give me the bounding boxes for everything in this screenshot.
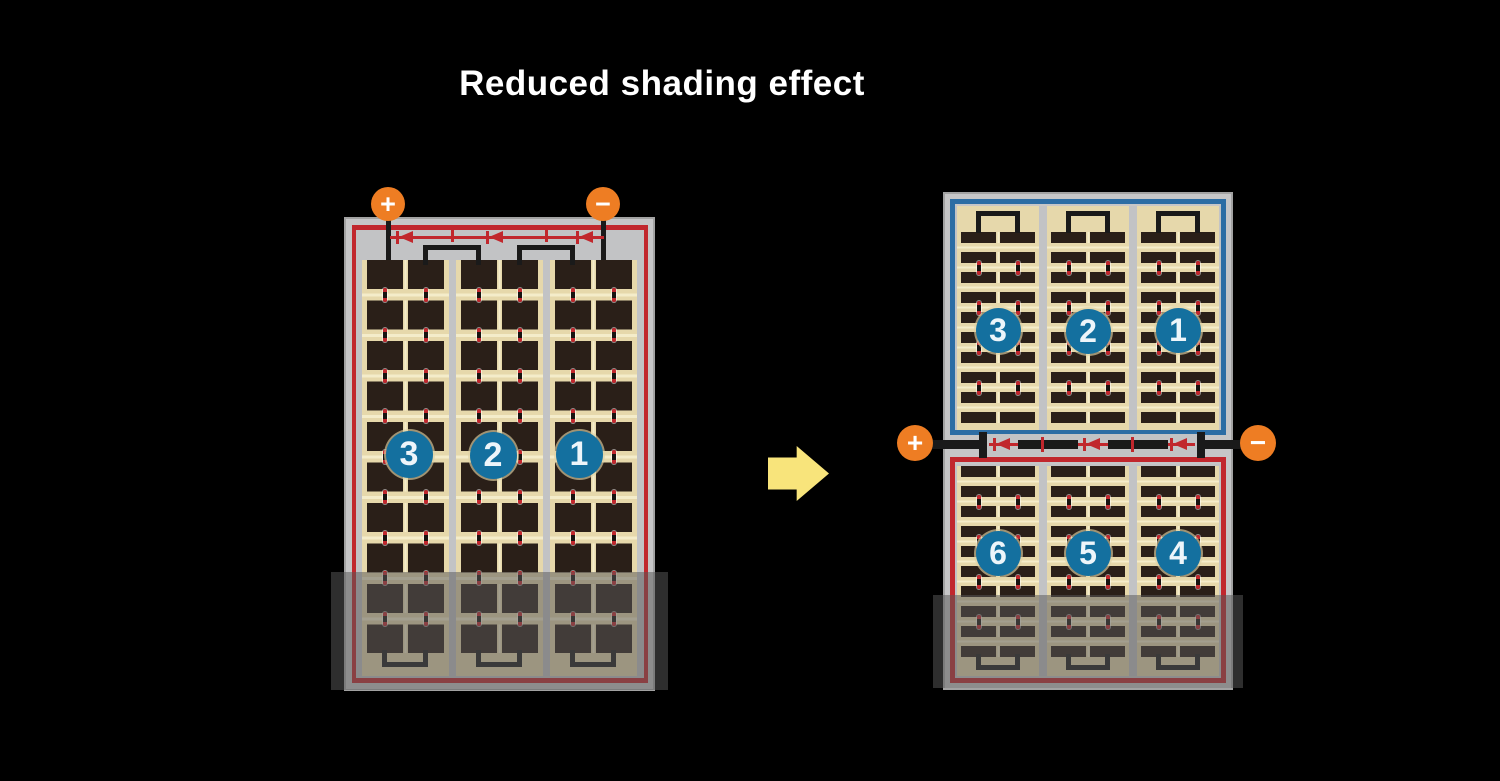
- cell-joint: [571, 328, 575, 342]
- string-number-badge: 4: [1156, 531, 1201, 576]
- string-number-badge: 6: [976, 531, 1021, 576]
- cell-joint: [424, 288, 428, 302]
- cell-area-strip: [957, 423, 1039, 430]
- cell-joint: [1016, 575, 1020, 589]
- cell-area-strip: [1047, 423, 1129, 430]
- cell-joint: [424, 531, 428, 545]
- cell-joint: [612, 409, 616, 423]
- cell-joint: [1016, 261, 1020, 275]
- cell-joint: [477, 409, 481, 423]
- cell-joint: [477, 369, 481, 383]
- cell-joint: [1067, 495, 1071, 509]
- series-connector-top: [423, 245, 481, 265]
- string-number-badge: 1: [556, 431, 603, 478]
- junction-left-end-bar: [979, 432, 987, 458]
- cell-joint: [477, 490, 481, 504]
- cell-joint: [1106, 381, 1110, 395]
- cell-joint: [571, 369, 575, 383]
- left-shading-overlay: [331, 572, 668, 690]
- cell-joint: [383, 328, 387, 342]
- bypass-diode-icon: [576, 231, 594, 244]
- cell-joint: [1067, 381, 1071, 395]
- string-number-badge: 2: [1066, 309, 1111, 354]
- string-number-badge: 5: [1066, 531, 1111, 576]
- junction-bus-segment: [1108, 440, 1168, 449]
- cell-joint: [1196, 381, 1200, 395]
- cell-joint: [383, 490, 387, 504]
- cell-joint: [518, 409, 522, 423]
- cell-joint: [612, 288, 616, 302]
- cell-joint: [477, 531, 481, 545]
- cell-joint: [518, 369, 522, 383]
- cell-joint: [571, 409, 575, 423]
- diode-line-tick: [1041, 437, 1044, 452]
- cell-joint: [977, 261, 981, 275]
- cell-joint: [1157, 575, 1161, 589]
- cell-joint: [1106, 261, 1110, 275]
- cell-joint: [518, 328, 522, 342]
- cell-joint: [1196, 495, 1200, 509]
- series-connector-top: [1156, 211, 1200, 233]
- cell-joint: [1106, 575, 1110, 589]
- cell-joint: [612, 531, 616, 545]
- cell-joint: [1196, 301, 1200, 315]
- bypass-diode-icon: [486, 231, 504, 244]
- cell-joint: [1067, 261, 1071, 275]
- cell-joint: [1157, 381, 1161, 395]
- string-number-badge: 1: [1156, 308, 1201, 353]
- cell-joint: [1157, 261, 1161, 275]
- cell-joint: [1196, 261, 1200, 275]
- cell-joint: [1016, 301, 1020, 315]
- cell-joint: [977, 575, 981, 589]
- cell-joint: [977, 381, 981, 395]
- right-negative-terminal-icon: −: [1240, 425, 1276, 461]
- cell-joint: [424, 328, 428, 342]
- cell-joint: [383, 369, 387, 383]
- arrow-right-icon: [768, 446, 829, 501]
- right-shading-overlay: [933, 595, 1243, 688]
- cell-joint: [518, 288, 522, 302]
- page-title: Reduced shading effect: [0, 64, 1324, 104]
- series-connector-top: [517, 245, 575, 265]
- cell-joint: [1016, 495, 1020, 509]
- cell-joint: [1157, 301, 1161, 315]
- string-number-badge: 3: [976, 308, 1021, 353]
- cell-joint: [424, 409, 428, 423]
- diode-line-tick: [1131, 437, 1134, 452]
- cell-joint: [424, 369, 428, 383]
- diagram-canvas: Reduced shading effect + − + − 321321654: [0, 0, 1500, 781]
- diode-line-tick: [451, 229, 454, 242]
- diode-line-tick: [545, 229, 548, 242]
- bypass-diode-icon: [1083, 438, 1101, 451]
- cell-joint: [477, 328, 481, 342]
- bypass-diode-icon: [993, 438, 1011, 451]
- cell-joint: [612, 369, 616, 383]
- cell-joint: [1196, 575, 1200, 589]
- cell-joint: [477, 288, 481, 302]
- left-negative-terminal-icon: −: [586, 187, 620, 221]
- positive-lead-wire: [930, 440, 980, 449]
- junction-bus-segment: [1018, 440, 1078, 449]
- cell-joint: [977, 495, 981, 509]
- cell-joint: [383, 288, 387, 302]
- cell-joint: [1106, 495, 1110, 509]
- cell-joint: [424, 490, 428, 504]
- cell-joint: [977, 301, 981, 315]
- string-number-badge: 3: [386, 431, 433, 478]
- cell-joint: [571, 288, 575, 302]
- bypass-diode-icon: [396, 231, 414, 244]
- cell-joint: [383, 409, 387, 423]
- series-connector-top: [1066, 211, 1110, 233]
- string-number-badge: 2: [470, 432, 517, 479]
- cell-area-strip: [1137, 423, 1219, 430]
- cell-joint: [612, 490, 616, 504]
- bypass-diode-icon: [1170, 438, 1188, 451]
- cell-joint: [612, 328, 616, 342]
- cell-joint: [1067, 575, 1071, 589]
- cell-joint: [383, 531, 387, 545]
- cell-joint: [518, 450, 522, 464]
- cell-joint: [571, 531, 575, 545]
- cell-joint: [1016, 381, 1020, 395]
- cell-joint: [612, 450, 616, 464]
- cell-joint: [1067, 301, 1071, 315]
- cell-joint: [518, 531, 522, 545]
- right-positive-terminal-icon: +: [897, 425, 933, 461]
- cell-joint: [571, 490, 575, 504]
- cell-joint: [1157, 495, 1161, 509]
- left-positive-terminal-icon: +: [371, 187, 405, 221]
- cell-joint: [518, 490, 522, 504]
- series-connector-top: [976, 211, 1020, 233]
- cell-joint: [1106, 301, 1110, 315]
